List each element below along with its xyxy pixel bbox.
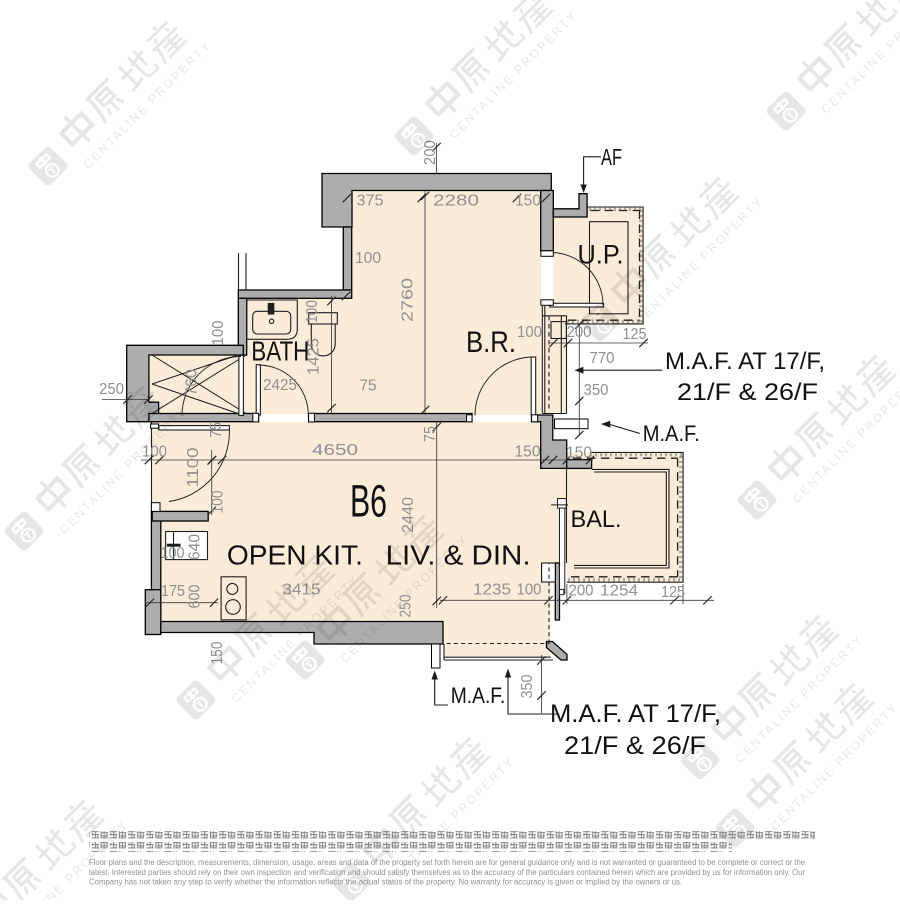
svg-text:AF: AF: [601, 144, 622, 170]
svg-text:100: 100: [355, 250, 381, 267]
svg-text:125: 125: [661, 584, 685, 601]
svg-text:B6: B6: [350, 476, 387, 527]
svg-text:150: 150: [566, 445, 592, 462]
svg-text:100: 100: [304, 300, 321, 323]
svg-text:100: 100: [210, 490, 227, 513]
svg-text:U.P.: U.P.: [578, 240, 624, 270]
svg-text:640: 640: [187, 534, 204, 560]
svg-text:BATH: BATH: [251, 336, 309, 367]
svg-text:M.A.F. AT 17/F,: M.A.F. AT 17/F,: [550, 700, 721, 728]
svg-text:100: 100: [517, 582, 542, 599]
svg-text:760: 760: [184, 369, 201, 396]
svg-text:1100: 1100: [185, 447, 202, 487]
svg-text:latest. Interested parties sho: latest. Interested parties should rely o…: [89, 868, 805, 877]
svg-text:350: 350: [519, 674, 536, 698]
svg-text:600: 600: [187, 584, 204, 608]
svg-text:100: 100: [210, 320, 227, 345]
svg-text:250: 250: [99, 381, 124, 398]
svg-text:2760: 2760: [400, 278, 417, 322]
svg-text:75: 75: [360, 378, 377, 395]
svg-text:770: 770: [590, 350, 615, 367]
svg-text:100: 100: [161, 545, 185, 562]
svg-text:2425: 2425: [263, 377, 297, 394]
svg-text:Floor plans and the descriptio: Floor plans and the description, measure…: [89, 858, 805, 867]
svg-text:75: 75: [208, 422, 225, 438]
svg-text:OPEN KIT.: OPEN KIT.: [227, 540, 363, 571]
svg-text:150: 150: [515, 193, 541, 210]
svg-text:M.A.F.: M.A.F.: [451, 683, 506, 708]
svg-text:75: 75: [422, 426, 439, 442]
svg-text:175: 175: [161, 583, 185, 600]
svg-text:2280: 2280: [433, 193, 480, 210]
svg-text:BAL.: BAL.: [571, 506, 622, 533]
svg-text:150: 150: [515, 444, 541, 461]
svg-text:1254: 1254: [600, 583, 638, 600]
svg-text:21/F & 26/F: 21/F & 26/F: [677, 379, 818, 406]
svg-text:200: 200: [569, 583, 594, 600]
svg-text:M.A.F.: M.A.F.: [643, 421, 700, 446]
svg-text:B.R.: B.R.: [466, 326, 516, 359]
svg-text:125: 125: [623, 326, 647, 343]
svg-text:100: 100: [517, 324, 542, 341]
svg-text:375: 375: [357, 193, 384, 210]
svg-text:4650: 4650: [312, 442, 359, 459]
svg-text:1235: 1235: [473, 582, 511, 599]
svg-text:350: 350: [584, 382, 609, 399]
svg-text:Company has not taken any step: Company has not taken any step to verify…: [89, 878, 682, 887]
svg-text:M.A.F. AT 17/F,: M.A.F. AT 17/F,: [665, 348, 825, 375]
